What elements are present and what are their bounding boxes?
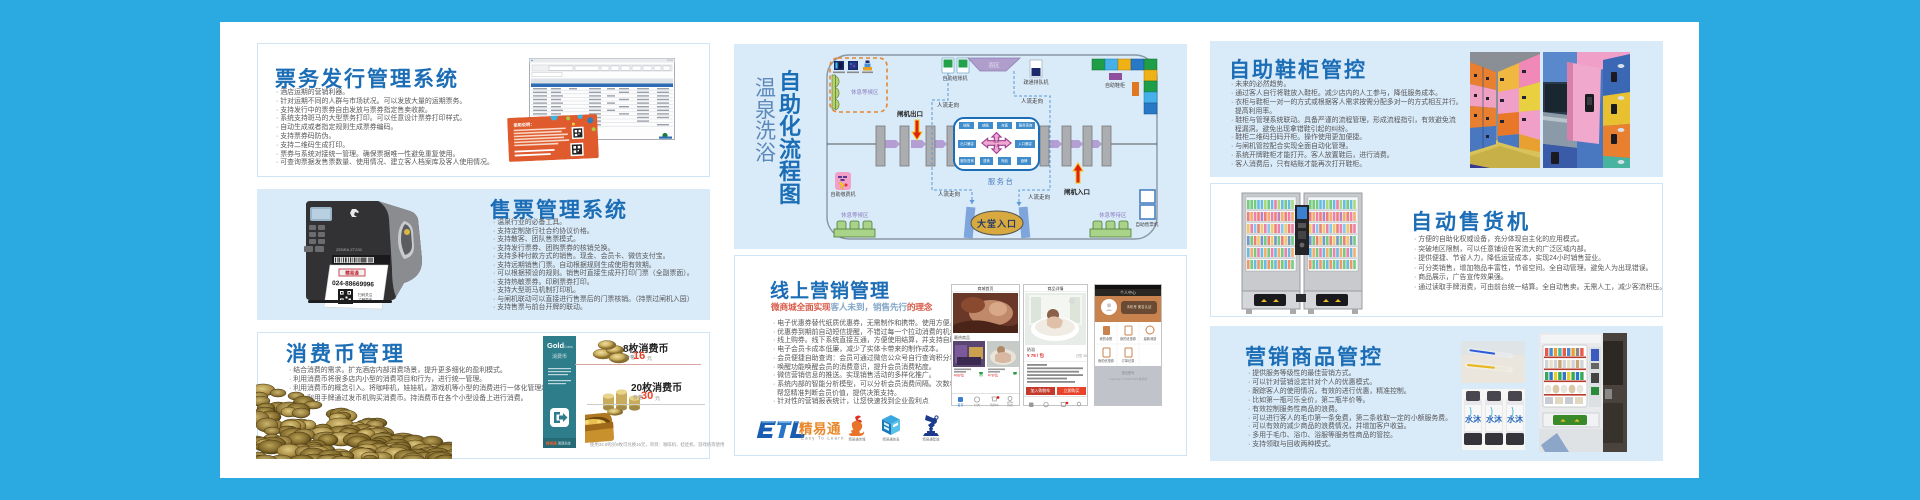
- svg-text:我的: 我的: [1007, 402, 1013, 407]
- svg-text:结账: 结账: [963, 123, 970, 128]
- svg-text:精易通: 精易通: [546, 441, 557, 446]
- svg-text:服务台: 服务台: [988, 177, 1014, 186]
- svg-text:商品: 商品: [1001, 158, 1008, 163]
- svg-text:自助鞋柜: 自助鞋柜: [1105, 82, 1125, 89]
- svg-text:我的优惠券: 我的优惠券: [1098, 358, 1115, 363]
- svg-text:人流走向: 人流走向: [937, 101, 959, 109]
- svg-text:休息等候区: 休息等候区: [851, 88, 879, 96]
- svg-text:分类: 分类: [974, 402, 980, 407]
- svg-text:我的余额: 我的余额: [1100, 336, 1114, 341]
- svg-text:精易通传媒: 精易通传媒: [849, 437, 867, 442]
- svg-text:精易通: 精易通: [345, 270, 359, 277]
- svg-text:休息等待区: 休息等待区: [1099, 211, 1127, 219]
- svg-text:休息等候区: 休息等候区: [841, 211, 869, 219]
- svg-text:自助结账机: 自助结账机: [942, 75, 967, 82]
- svg-text:¥78/位: ¥78/位: [988, 372, 999, 377]
- svg-text:人流走向: 人流走向: [1021, 97, 1043, 105]
- svg-text:服务咨询: 服务咨询: [960, 158, 974, 163]
- svg-text:首页: 首页: [957, 402, 963, 407]
- svg-text:Easy To Learn: Easy To Learn: [801, 436, 845, 441]
- svg-text:Coins: Coins: [564, 345, 573, 349]
- svg-text:入口兼容: 入口兼容: [1018, 141, 1032, 146]
- svg-text:人员: 人员: [993, 143, 999, 147]
- svg-text:ZEBRA ZT230: ZEBRA ZT230: [336, 247, 363, 252]
- svg-text:订单记录: 订单记录: [1122, 358, 1136, 363]
- svg-text:闸机出口: 闸机出口: [897, 109, 923, 118]
- svg-text:管理系统: 管理系统: [558, 441, 572, 446]
- svg-text:人流走向: 人流走向: [938, 190, 960, 198]
- svg-text:疏通排队机: 疏通排队机: [1023, 79, 1048, 86]
- svg-text:充值: 充值: [1001, 123, 1008, 128]
- svg-text:自助售票机: 自助售票机: [1136, 221, 1159, 228]
- svg-text:扫码关注: 扫码关注: [358, 292, 373, 297]
- svg-text:人流走向: 人流走向: [1028, 193, 1050, 201]
- svg-text:Gold: Gold: [547, 341, 564, 350]
- svg-text:水沐: 水沐: [1464, 414, 1482, 424]
- svg-text:最新消费: 最新消费: [1144, 336, 1157, 341]
- svg-text:购物车: 购物车: [990, 402, 999, 407]
- svg-text:酒牌: 酒牌: [1021, 158, 1028, 163]
- svg-text:精易通智能: 精易通智能: [923, 437, 941, 442]
- svg-text:退换: 退换: [983, 158, 990, 163]
- svg-text:服务咨询: 服务咨询: [1019, 123, 1033, 128]
- svg-text:024-88669996: 024-88669996: [332, 280, 375, 288]
- svg-text:消费币: 消费币: [552, 353, 567, 360]
- svg-text:精易通: 精易通: [799, 421, 841, 437]
- svg-text:结账: 结账: [982, 123, 989, 128]
- svg-text:出口兼容: 出口兼容: [960, 141, 974, 146]
- svg-text:¥98/位: ¥98/位: [954, 372, 965, 377]
- svg-text:自助缴费机: 自助缴费机: [830, 191, 855, 198]
- svg-text:我的优惠券: 我的优惠券: [1120, 336, 1137, 341]
- svg-text:浴区: 浴区: [988, 61, 1000, 69]
- svg-text:精易通信息: 精易通信息: [883, 437, 901, 442]
- svg-text:闸机入口: 闸机入口: [1064, 187, 1090, 196]
- svg-text:大堂入口: 大堂入口: [977, 218, 1017, 229]
